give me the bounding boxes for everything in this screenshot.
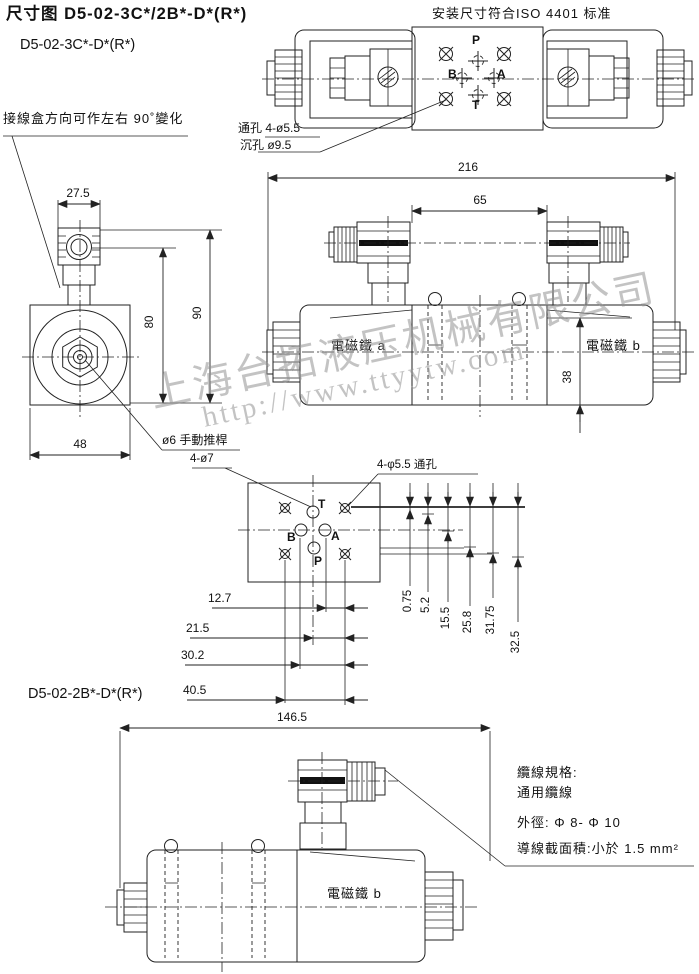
standard-note: 安装尺寸符合ISO 4401 标准: [432, 7, 612, 22]
solenoid-b-label: 電磁鐵 b: [586, 339, 641, 354]
dim-0-75: 0.75: [402, 581, 416, 621]
cable-note-type: 通用纜線: [517, 786, 573, 801]
junction-box-note: 接線盒方向可作左右 90˚變化: [3, 112, 183, 127]
solenoid-b-label-single: 電磁鐵 b: [327, 887, 382, 902]
page-title: 尺寸图 D5-02-3C*/2B*-D*(R*): [6, 5, 247, 24]
dim-5-2: 5.2: [420, 585, 434, 625]
dim-38: 38: [562, 357, 576, 397]
dim-40-5: 40.5: [183, 684, 206, 698]
front-view-art: [262, 172, 697, 433]
through-hole-note: 通孔 4-ø5.5: [238, 122, 300, 136]
dim-48: 48: [58, 438, 102, 452]
plate-port-p: P: [314, 555, 322, 569]
manual-pin-note: ø6 手動推桿: [162, 434, 227, 448]
dim-216: 216: [446, 161, 490, 175]
dim-15-5: 15.5: [440, 598, 454, 638]
top-view-port-p: P: [472, 34, 480, 48]
top-view-port-t: T: [472, 99, 479, 113]
plate-port-a: A: [331, 530, 340, 544]
cable-note-title: 纜線規格:: [517, 766, 578, 781]
counterbore-note: 沉孔 ø9.5: [240, 139, 291, 153]
dim-12-7: 12.7: [208, 592, 231, 606]
dim-31-75: 31.75: [485, 600, 499, 640]
dim-25-8: 25.8: [462, 602, 476, 642]
dim-27-5: 27.5: [56, 187, 100, 201]
solenoid-a-label: 電磁鐵 a: [331, 339, 386, 354]
plate-view-art: [185, 468, 525, 705]
hole-note-7: 4-ø7: [190, 453, 214, 466]
top-view-port-b: B: [448, 68, 457, 82]
plate-port-t: T: [318, 498, 325, 512]
hole-note-55: 4-φ5.5 通孔: [377, 459, 437, 472]
dim-32-5: 32.5: [510, 622, 524, 662]
variant-2b-label: D5-02-2B*-D*(R*): [28, 686, 142, 703]
dim-21-5: 21.5: [186, 622, 209, 636]
dim-65: 65: [458, 194, 502, 208]
dim-30-2: 30.2: [181, 649, 204, 663]
dim-146-5: 146.5: [268, 711, 316, 725]
dim-80: 80: [144, 302, 158, 342]
cable-note-od: 外徑: Φ 8- Φ 10: [517, 816, 621, 831]
plate-port-b: B: [287, 531, 296, 545]
variant-3c-label: D5-02-3C*-D*(R*): [20, 37, 135, 54]
dim-90: 90: [192, 293, 206, 333]
cable-note-area: 導線截面積:小於 1.5 mm²: [517, 842, 679, 857]
top-view-port-a: A: [497, 68, 506, 82]
dimension-drawing-page: 尺寸图 D5-02-3C*/2B*-D*(R*) D5-02-3C*-D*(R*…: [0, 0, 699, 974]
